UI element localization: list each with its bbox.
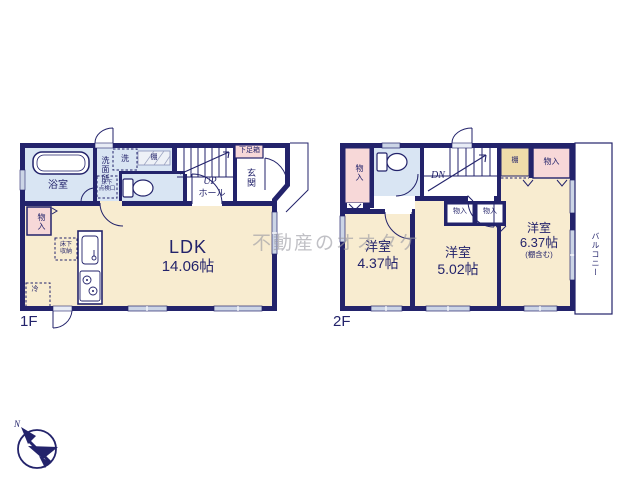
- kitchen-stove: [80, 271, 100, 301]
- label-room-c-name: 洋室: [508, 222, 570, 236]
- label-closet-2f-topleft: 物入: [351, 160, 364, 186]
- kitchen-unit: [78, 231, 102, 304]
- label-closet-2f-mid-left: 物入: [447, 208, 473, 216]
- label-underfloor-storage-line2: 収納: [55, 249, 77, 256]
- floor1-opening-hall: [192, 201, 222, 206]
- label-underfloor-storage: 床下 収納: [55, 242, 77, 256]
- label-entrance: 玄関: [243, 163, 256, 193]
- label-balcony: バルコニー: [587, 212, 600, 297]
- label-room-a-name: 洋室: [343, 240, 413, 255]
- label-room-c: 洋室 6.37帖 (棚含む): [508, 222, 570, 259]
- floor1-opening-washroom: [100, 201, 122, 206]
- compass-icon: [18, 427, 58, 468]
- compass-north-label: N: [10, 419, 24, 429]
- label-floor2: 2F: [333, 313, 363, 330]
- label-stairs-dn: DN: [426, 170, 450, 182]
- toilet-1f: [123, 179, 153, 197]
- label-room-c-size: 6.37帖: [508, 236, 570, 251]
- label-underfloor-hatch: 床下 点検口: [96, 180, 118, 193]
- floorplan-page: 不動産のオオタケ 浴室 洗面所 洗 棚 床下 点検口 物入 床下 収納 冷 LD…: [0, 0, 640, 480]
- label-floor1: 1F: [20, 313, 50, 330]
- label-ldk-name: LDK: [140, 237, 236, 258]
- label-room-a: 洋室 4.37帖: [343, 240, 413, 271]
- floor1-backdoor-gap: [95, 143, 113, 148]
- label-fridge: 冷: [29, 286, 41, 294]
- label-room-b-name: 洋室: [420, 246, 496, 261]
- toilet-2f: [377, 153, 407, 171]
- label-underfloor-storage-line1: 床下: [55, 242, 77, 249]
- floor2-opening-room-a: [385, 209, 412, 214]
- label-shoe-cabinet: 下足箱: [236, 147, 263, 155]
- label-closet-2f-mid-right: 物入: [477, 208, 503, 216]
- label-washer: 洗: [116, 154, 134, 163]
- bath-window: [20, 170, 25, 190]
- floor2-plan: [340, 128, 612, 314]
- label-room-c-note: (棚含む): [508, 251, 570, 260]
- label-room-a-size: 4.37帖: [343, 255, 413, 271]
- label-hall: ホール: [190, 188, 234, 198]
- kitchen-sink: [82, 236, 98, 264]
- label-stairs-up: UP: [196, 176, 224, 188]
- bathtub: [33, 152, 89, 174]
- label-underfloor-hatch-line2: 点検口: [96, 186, 118, 192]
- floor2-stairs-door-gap: [452, 143, 472, 148]
- label-ldk-size: 14.06帖: [140, 258, 236, 275]
- label-shelf-2f: 棚: [505, 157, 525, 165]
- label-room-b-size: 5.02帖: [420, 261, 496, 277]
- floor1-frontdoor-gap: [53, 306, 72, 311]
- label-closet-2f-topright: 物入: [535, 157, 568, 166]
- label-shelf-1f: 棚: [142, 154, 166, 162]
- label-bath: 浴室: [38, 180, 78, 192]
- label-ldk: LDK 14.06帖: [140, 237, 236, 275]
- label-room-b: 洋室 5.02帖: [420, 246, 496, 277]
- label-closet-1f: 物入: [32, 211, 46, 233]
